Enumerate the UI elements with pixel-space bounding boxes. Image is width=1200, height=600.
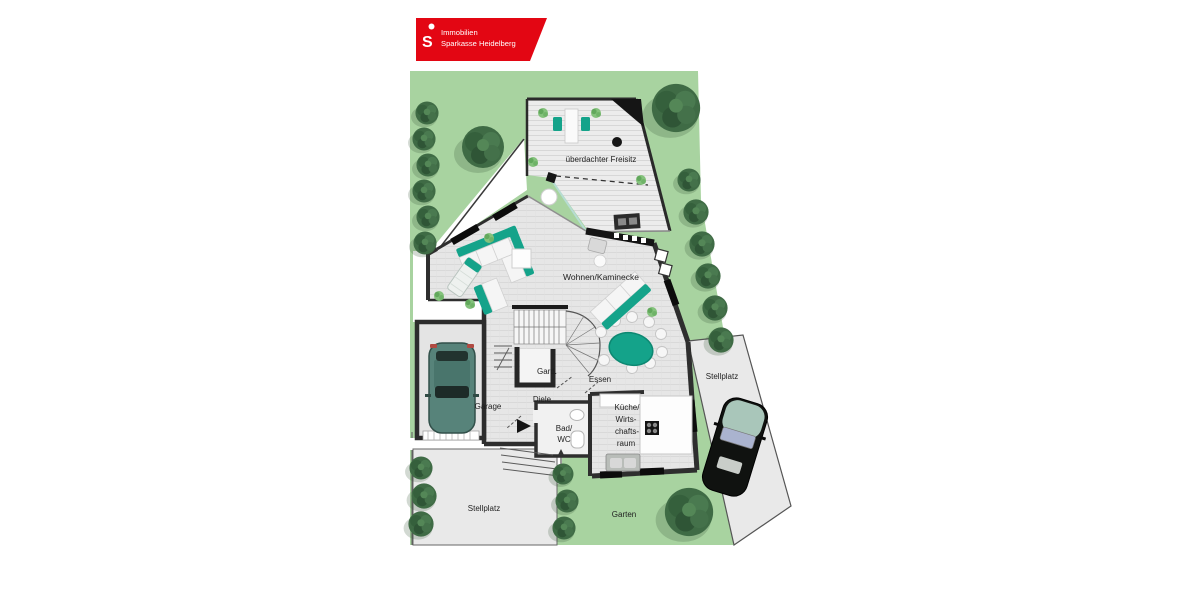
floorplan-page: Stellplatz Stellplatz — [0, 0, 1200, 600]
garderobe-niche — [520, 349, 551, 383]
label-garten: Garten — [612, 510, 636, 519]
label-kueche-line2: Wirts- — [616, 415, 637, 424]
label-stellplatz-bottom: Stellplatz — [468, 504, 500, 513]
car-garage-windshield — [435, 386, 469, 398]
label-gard: Gard. — [537, 367, 557, 376]
plant-icon — [465, 299, 475, 309]
car-garage-rear-window — [436, 351, 468, 361]
label-garage: Garage — [475, 402, 502, 411]
bush-icon — [404, 511, 434, 539]
terrace-dining-table — [565, 109, 578, 143]
label-freisitz: überdachter Freisitz — [566, 155, 637, 164]
grill-plate — [629, 217, 637, 225]
plant-icon — [434, 291, 444, 301]
label-wohnen: Wohnen/Kaminecke — [563, 272, 639, 282]
cooktop — [645, 421, 659, 435]
label-bad-line1: Bad/ — [556, 424, 573, 433]
label-kueche-line4: raum — [617, 439, 636, 448]
terrace-chair-right — [581, 117, 590, 131]
bathroom: Bad/ WC — [533, 402, 590, 456]
sink-basin — [610, 458, 622, 468]
terrace-column — [612, 137, 622, 147]
grill — [614, 213, 641, 230]
car-mirror — [425, 394, 431, 397]
label-kueche-line3: chafts- — [615, 427, 639, 436]
logo: S Immobilien Sparkasse Heidelberg — [416, 18, 547, 61]
svg-text:S: S — [422, 34, 433, 51]
car-mirror — [473, 394, 479, 397]
wall-shelf — [659, 263, 672, 276]
label-stellplatz-right: Stellplatz — [706, 372, 738, 381]
terrace-table-round — [541, 189, 557, 205]
logo-line2: Sparkasse Heidelberg — [441, 39, 516, 48]
bush-icon — [405, 456, 433, 482]
coffee-table — [512, 249, 531, 268]
logo-line1: Immobilien — [441, 28, 478, 37]
sink-basin — [624, 458, 636, 468]
label-essen: Essen — [589, 375, 611, 384]
car-garage-roof — [434, 360, 470, 388]
label-diele: Diele — [533, 395, 552, 404]
plant-icon — [591, 108, 601, 118]
plant-icon — [538, 108, 548, 118]
grill-plate — [618, 218, 626, 226]
car-taillight — [467, 344, 474, 348]
bath-sink — [570, 410, 584, 421]
car-taillight — [430, 344, 437, 348]
label-kueche-line1: Küche/ — [615, 403, 641, 412]
terrace-chair-left — [553, 117, 562, 131]
plant-icon — [636, 175, 646, 185]
plant-icon — [647, 307, 657, 317]
plant-icon — [528, 157, 538, 167]
plant-icon — [484, 233, 494, 243]
bath-toilet — [571, 431, 584, 448]
side-table — [594, 255, 606, 267]
bathroom-door-gap — [533, 410, 538, 423]
label-bad-line2: WC — [557, 435, 571, 444]
floorplan-canvas: Stellplatz Stellplatz — [0, 0, 1200, 600]
wall-shelf — [655, 249, 668, 262]
car-garage — [425, 343, 479, 433]
